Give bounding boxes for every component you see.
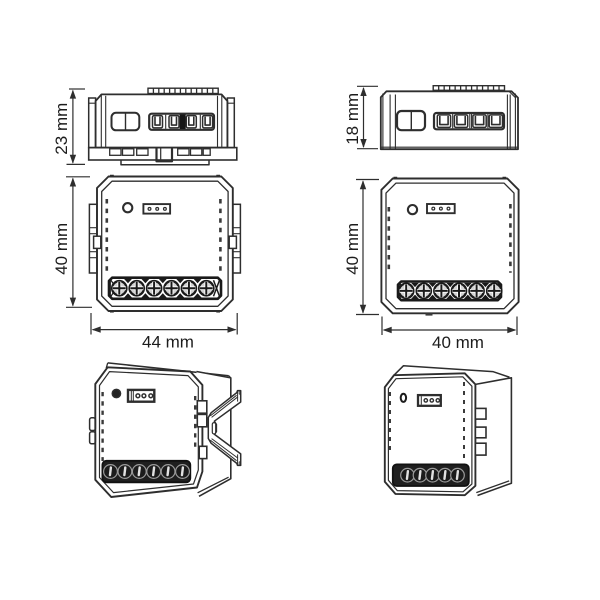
svg-text:40 mm: 40 mm bbox=[52, 223, 71, 275]
svg-text:18 mm: 18 mm bbox=[343, 93, 362, 145]
svg-text:44 mm: 44 mm bbox=[142, 333, 194, 352]
svg-text:40 mm: 40 mm bbox=[432, 333, 484, 352]
svg-text:23 mm: 23 mm bbox=[52, 103, 71, 155]
svg-text:40 mm: 40 mm bbox=[343, 223, 362, 275]
